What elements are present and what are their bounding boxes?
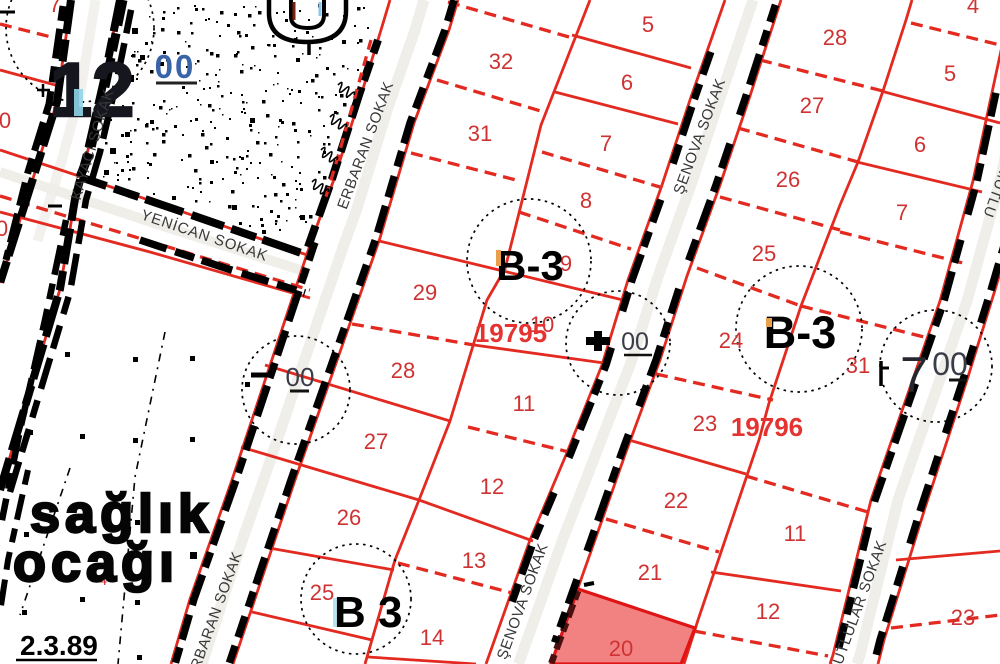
svg-text:28: 28 [823,25,847,50]
svg-text:31: 31 [846,353,870,378]
svg-text:5: 5 [944,61,956,86]
svg-text:26: 26 [776,167,800,192]
svg-text:14: 14 [420,625,444,650]
svg-text:00: 00 [155,48,196,85]
svg-text:19795: 19795 [475,318,547,348]
svg-text:7: 7 [600,131,612,156]
svg-text:27: 27 [800,93,824,118]
svg-text:5: 5 [642,12,654,37]
svg-text:00: 00 [621,328,649,356]
svg-text:12: 12 [756,599,780,624]
svg-text:7: 7 [896,200,908,225]
svg-text:B: B [334,588,366,637]
svg-text:8: 8 [580,188,592,213]
svg-text:2.3.89: 2.3.89 [20,630,98,661]
svg-text:27: 27 [364,429,388,454]
svg-text:ocağı: ocağı [13,533,179,593]
svg-text:29: 29 [413,280,437,305]
svg-text:B-3: B-3 [764,307,837,358]
svg-text:7: 7 [49,0,61,17]
svg-text:25: 25 [752,241,776,266]
svg-text:6: 6 [914,132,926,157]
svg-text:32: 32 [489,49,513,74]
svg-text:12: 12 [480,474,504,499]
svg-text:11: 11 [784,521,807,546]
svg-text:B-3: B-3 [496,242,564,289]
svg-text:28: 28 [391,358,415,383]
svg-text:22: 22 [664,488,688,513]
svg-text:24: 24 [719,328,743,353]
svg-text:7: 7 [900,347,928,403]
svg-text:3: 3 [378,588,402,637]
svg-text:11: 11 [513,391,536,416]
svg-text:21: 21 [638,560,662,585]
svg-text:6: 6 [621,70,633,95]
svg-text:23: 23 [951,605,975,630]
svg-text:00: 00 [286,362,315,392]
svg-text:31: 31 [468,121,492,146]
svg-text:13: 13 [462,548,486,573]
svg-text:0: 0 [0,108,11,133]
svg-text:0: 0 [0,216,8,241]
svg-text:20: 20 [609,636,633,661]
svg-text:4: 4 [967,0,979,18]
svg-text:00: 00 [932,346,968,382]
svg-text:23: 23 [693,411,717,436]
svg-text:19796: 19796 [731,412,803,442]
svg-text:25: 25 [310,580,334,605]
svg-text:26: 26 [337,505,361,530]
